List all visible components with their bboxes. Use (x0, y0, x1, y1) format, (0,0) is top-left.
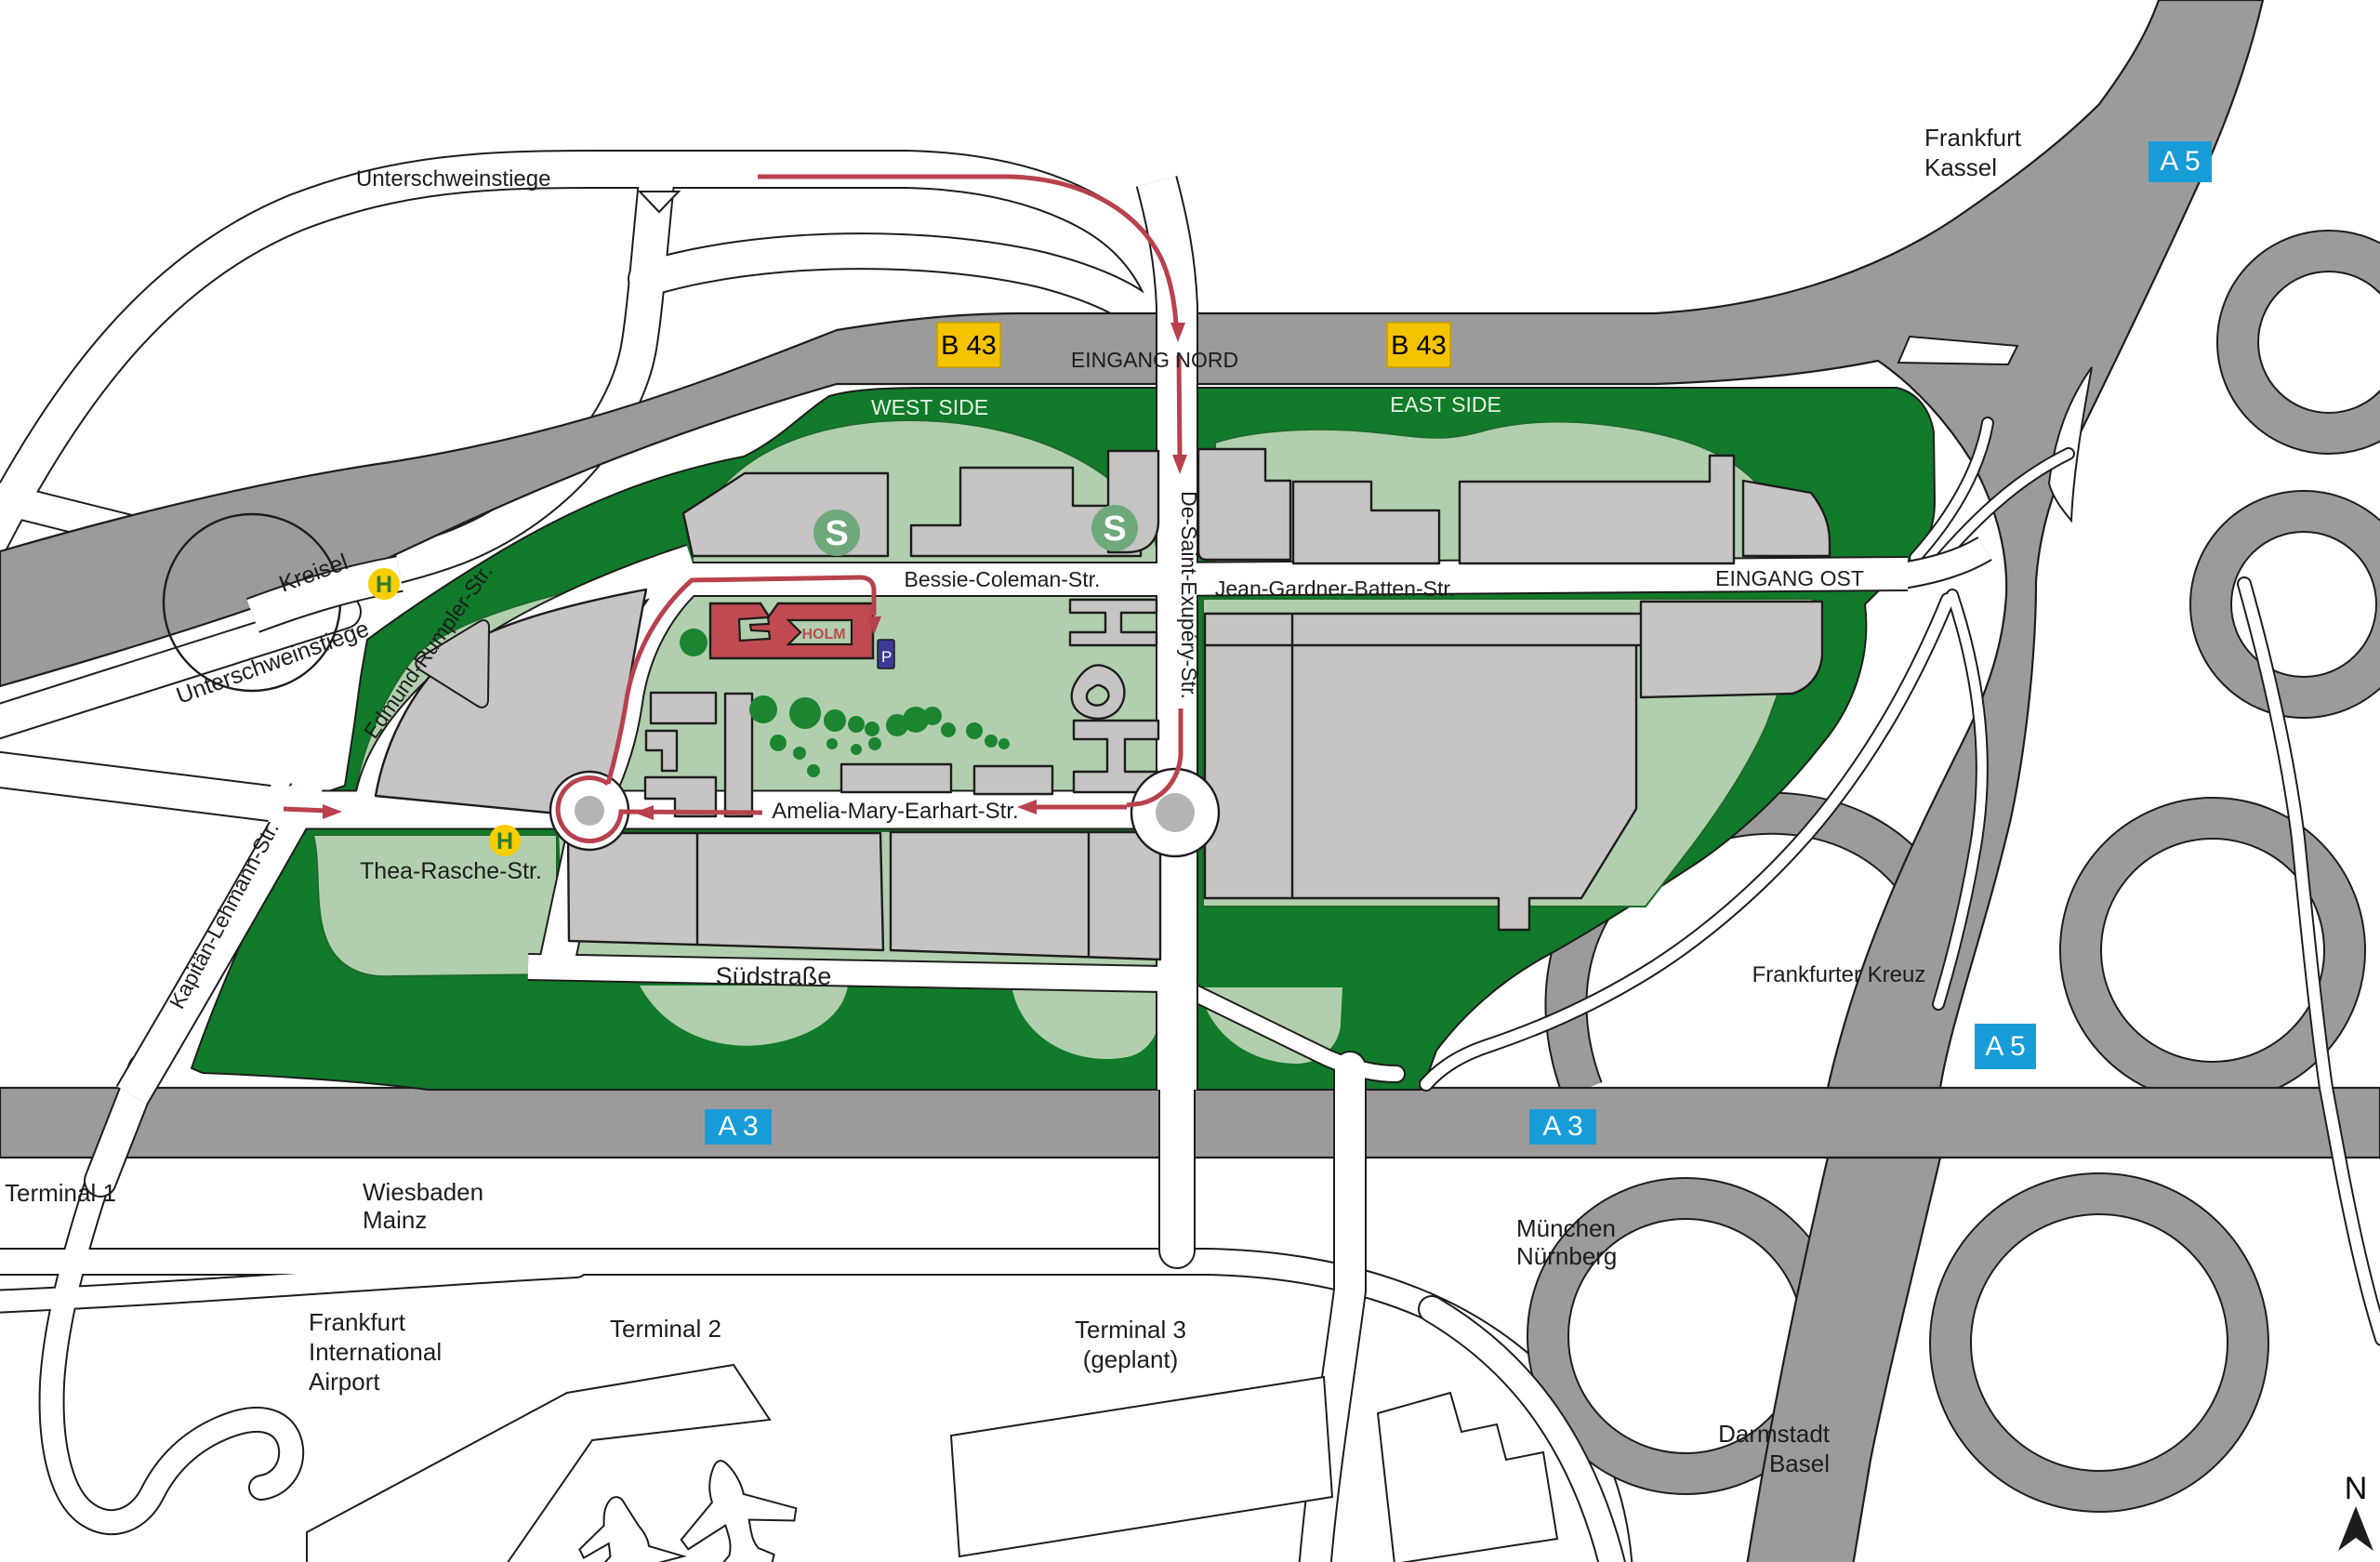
svg-text:H: H (496, 828, 513, 854)
svg-text:B 43: B 43 (941, 331, 997, 361)
svg-text:Terminal 1: Terminal 1 (5, 1179, 116, 1207)
svg-text:Jean-Gardner-Batten-Str.: Jean-Gardner-Batten-Str. (1215, 576, 1455, 601)
svg-text:H: H (376, 572, 392, 598)
svg-text:S: S (1103, 510, 1126, 549)
svg-text:Mainz: Mainz (363, 1206, 427, 1234)
svg-text:A 5: A 5 (1985, 1031, 2025, 1062)
svg-text:N: N (2345, 1471, 2368, 1506)
svg-text:Frankfurt: Frankfurt (1924, 124, 2022, 152)
svg-text:Südstraße: Südstraße (716, 962, 832, 990)
svg-text:Unterschweinstiege: Unterschweinstiege (356, 166, 550, 192)
svg-text:A 3: A 3 (718, 1111, 758, 1142)
svg-text:HOLM: HOLM (801, 627, 845, 642)
svg-text:P: P (881, 648, 892, 666)
svg-text:Terminal 2: Terminal 2 (610, 1315, 721, 1343)
svg-text:Terminal 3: Terminal 3 (1075, 1316, 1186, 1344)
svg-text:Airport: Airport (309, 1368, 380, 1396)
svg-text:Thea-Rasche-Str.: Thea-Rasche-Str. (360, 858, 542, 884)
svg-text:International: International (309, 1338, 442, 1366)
svg-text:S: S (825, 514, 848, 553)
svg-text:(geplant): (geplant) (1083, 1345, 1179, 1373)
svg-text:WEST SIDE: WEST SIDE (871, 395, 988, 419)
svg-text:Frankfurt: Frankfurt (309, 1308, 406, 1336)
svg-text:EINGANG OST: EINGANG OST (1715, 566, 1864, 590)
svg-text:A 3: A 3 (1542, 1111, 1582, 1142)
svg-text:B 43: B 43 (1391, 331, 1447, 361)
svg-text:Frankfurter Kreuz: Frankfurter Kreuz (1752, 962, 1926, 987)
svg-text:Nürnberg: Nürnberg (1516, 1242, 1617, 1270)
svg-text:Basel: Basel (1769, 1449, 1830, 1477)
svg-text:Bessie-Coleman-Str.: Bessie-Coleman-Str. (905, 567, 1101, 591)
svg-text:München: München (1516, 1214, 1616, 1242)
svg-text:Amelia-Mary-Earhart-Str.: Amelia-Mary-Earhart-Str. (772, 799, 1018, 824)
svg-text:Kassel: Kassel (1924, 153, 1997, 181)
svg-text:Darmstadt: Darmstadt (1718, 1420, 1831, 1448)
svg-text:EINGANG NORD: EINGANG NORD (1071, 348, 1238, 372)
svg-text:EAST SIDE: EAST SIDE (1390, 392, 1501, 417)
svg-text:De-Saint-Exupéry-Str.: De-Saint-Exupéry-Str. (1177, 491, 1201, 699)
svg-text:A 5: A 5 (2160, 146, 2200, 177)
svg-text:Wiesbaden: Wiesbaden (363, 1178, 483, 1206)
